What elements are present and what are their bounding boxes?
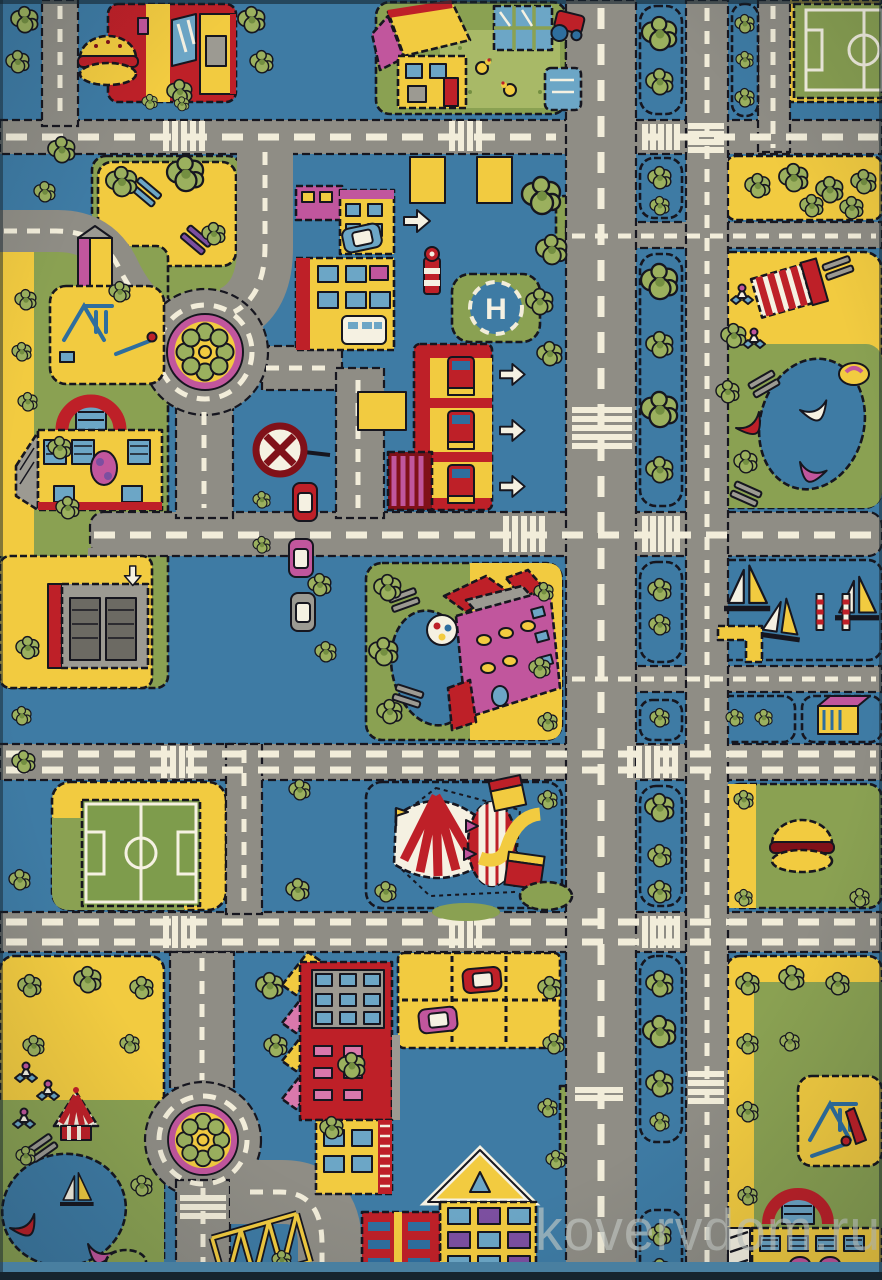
- rug-photo: H: [0, 0, 882, 1280]
- photo-edge: [0, 0, 882, 1280]
- rug-illustration: H: [0, 0, 882, 1280]
